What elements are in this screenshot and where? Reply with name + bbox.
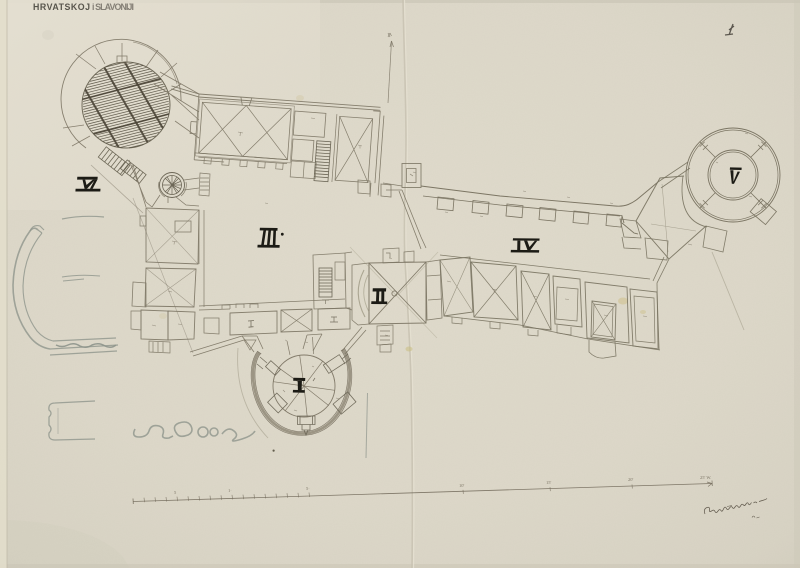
- svg-text:i SLAVONIJI: i SLAVONIJI: [92, 2, 134, 12]
- svg-text:10': 10': [459, 483, 465, 488]
- svg-text:HRVATSKOJ: HRVATSKOJ: [33, 2, 90, 12]
- svg-text:20': 20': [628, 477, 634, 482]
- svg-text:15': 15': [546, 480, 552, 485]
- svg-text:25' W.: 25' W.: [700, 475, 711, 480]
- svg-text:1·: 1·: [228, 488, 232, 493]
- svg-text:5·: 5·: [306, 486, 310, 491]
